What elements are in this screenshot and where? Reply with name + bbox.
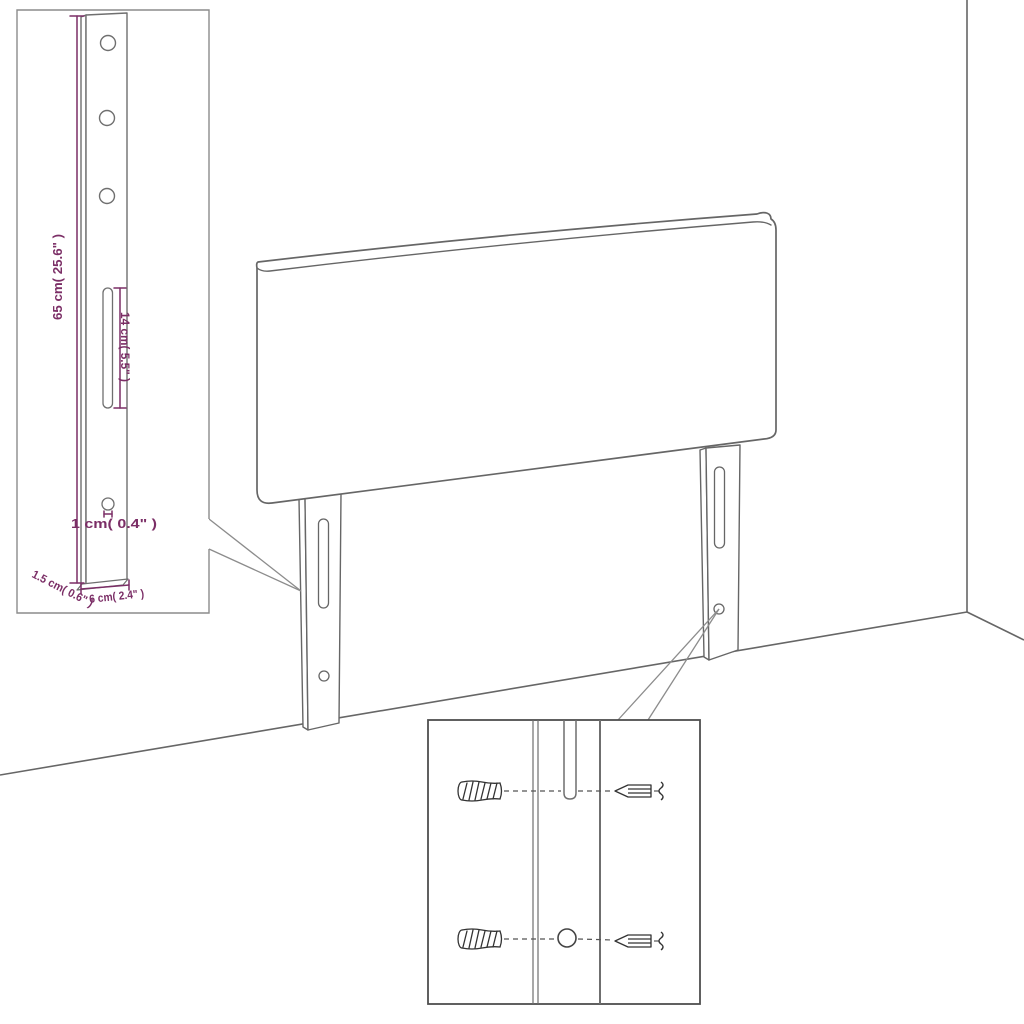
detail-small-hole xyxy=(102,498,114,510)
dim-label-hole-diameter: 1 cm( 0.4" ) xyxy=(71,517,157,531)
detail-hole-3 xyxy=(100,189,115,204)
leg-slot xyxy=(715,467,725,548)
headboard-leg-right xyxy=(700,445,740,660)
detail-leg-side-face xyxy=(81,15,86,587)
detail-hole-2 xyxy=(100,111,115,126)
dim-label-slot-length: 14 cm( 5.5" ) xyxy=(118,312,130,382)
headboard-leg-left xyxy=(299,494,341,730)
dim-label-leg-height: 65 cm( 25.6" ) xyxy=(51,234,65,320)
leg-hole xyxy=(319,671,329,681)
hardware-detail-inset xyxy=(428,720,700,1004)
callout-wedge-left xyxy=(209,519,301,591)
headboard-panel xyxy=(257,213,776,504)
detail-slot xyxy=(103,288,113,408)
callout-line xyxy=(618,609,719,720)
leg-slot xyxy=(319,519,329,608)
callout-wedge-right xyxy=(618,609,719,720)
headboard-outline xyxy=(257,213,776,504)
leg-detail-inset: 65 cm( 25.6" ) 14 cm( 5.5" ) 1 cm( 0.4" … xyxy=(17,10,209,613)
assembly-diagram: 65 cm( 25.6" ) 14 cm( 5.5" ) 1 cm( 0.4" … xyxy=(0,0,1024,1024)
detail-hole-1 xyxy=(101,36,116,51)
product-diagram-canvas: 65 cm( 25.6" ) 14 cm( 5.5" ) 1 cm( 0.4" … xyxy=(0,0,1024,1024)
floor-line-right xyxy=(967,612,1024,640)
